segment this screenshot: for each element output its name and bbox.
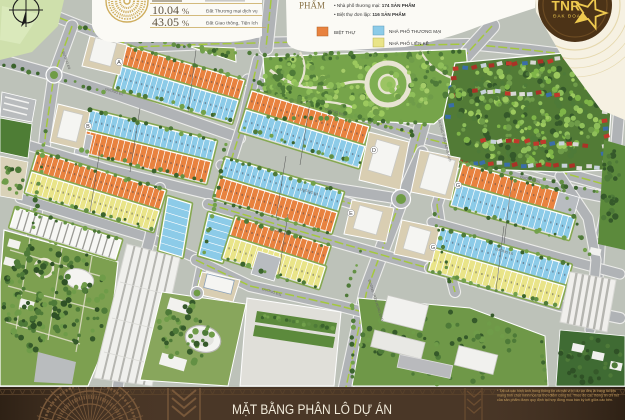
svg-text:Đất Thương mại dịch vụ: Đất Thương mại dịch vụ — [206, 9, 258, 15]
svg-text:B: B — [86, 124, 90, 130]
svg-text:mang tính chất minh họa tại th: mang tính chất minh họa tại thời điểm cô… — [497, 394, 619, 398]
svg-text:43.05 %: 43.05 % — [152, 15, 189, 29]
svg-text:* Tất cả các hình ảnh trong th: * Tất cả các hình ảnh trong thông tin và… — [497, 389, 616, 393]
svg-text:D: D — [372, 148, 376, 154]
svg-text:E: E — [349, 211, 353, 217]
svg-text:TNR: TNR — [552, 0, 581, 14]
svg-text:PHẨM: PHẨM — [299, 1, 325, 11]
svg-text:• Biệt thự đơn lập: 116 SẢN P: • Biệt thự đơn lập: 116 SẢN PHẨM — [334, 11, 406, 17]
svg-text:Đất Giao thông, Tiện ích: Đất Giao thông, Tiện ích — [206, 21, 258, 27]
svg-text:BIỆT THỰ: BIỆT THỰ — [334, 28, 355, 35]
svg-text:G: G — [456, 183, 460, 189]
svg-text:ĐAK ĐOA: ĐAK ĐOA — [553, 14, 581, 19]
svg-text:• Nhà phố thương mại: 174 SẢN: • Nhà phố thương mại: 174 SẢN PHẨM — [334, 2, 415, 8]
svg-text:MẶT BẰNG PHÂN LÔ DỰ ÁN: MẶT BẰNG PHÂN LÔ DỰ ÁN — [232, 402, 392, 417]
svg-text:NHÀ PHỐ THƯƠNG MẠI: NHÀ PHỐ THƯƠNG MẠI — [389, 28, 441, 34]
svg-text:của sản phẩm được quy định tại: của sản phẩm được quy định tại hợp đồng … — [497, 398, 613, 402]
svg-text:G: G — [431, 245, 435, 251]
svg-text:A: A — [117, 60, 121, 66]
svg-text:NHÀ PHỐ LIỀN KỀ: NHÀ PHỐ LIỀN KỀ — [389, 40, 429, 46]
